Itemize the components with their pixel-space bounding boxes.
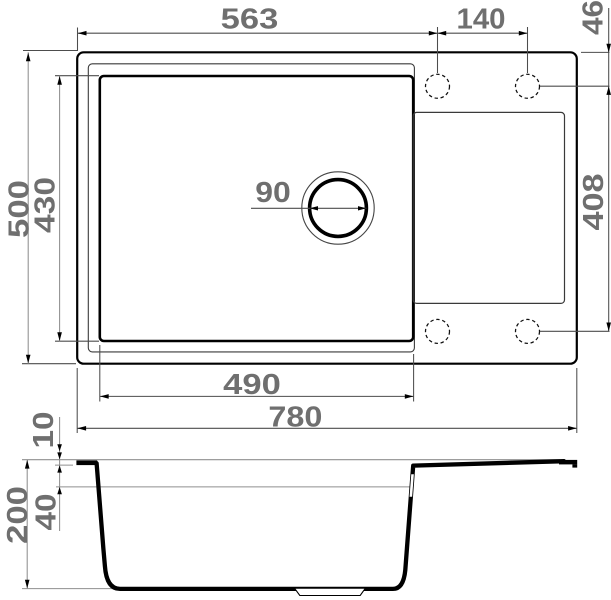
svg-text:90: 90	[255, 177, 291, 209]
svg-text:10: 10	[28, 412, 60, 449]
svg-text:408: 408	[578, 174, 610, 231]
svg-text:430: 430	[30, 177, 62, 233]
svg-text:780: 780	[268, 402, 322, 434]
svg-text:140: 140	[457, 4, 506, 36]
svg-text:46: 46	[577, 0, 609, 35]
svg-text:40: 40	[31, 494, 63, 531]
svg-text:200: 200	[2, 486, 34, 544]
svg-text:490: 490	[223, 369, 281, 401]
svg-text:563: 563	[221, 4, 279, 36]
